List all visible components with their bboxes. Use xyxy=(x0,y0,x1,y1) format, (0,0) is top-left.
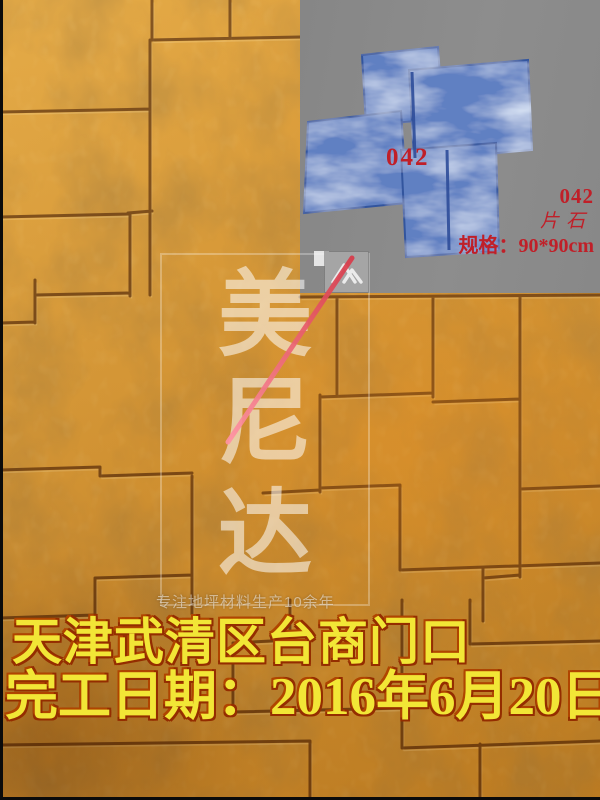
mold-code-label: 042 xyxy=(386,144,430,172)
location-caption: 天津武清区台商门口 xyxy=(12,617,471,667)
product-code-label: 042 xyxy=(458,186,594,207)
mountain-logo-icon xyxy=(325,252,368,292)
photo-canvas: 042 042 片石 规格：90*90cm 美 尼 达 专注地坪材料生产10 xyxy=(0,0,600,800)
brand-tagline: 专注地坪材料生产10余年 xyxy=(156,591,335,612)
photo-left-edge xyxy=(0,0,3,800)
product-label-block: 042 片石 规格：90*90cm xyxy=(458,186,594,256)
completion-date-caption: 完工日期：2016年6月20日 xyxy=(5,671,600,724)
product-material-label: 片石 xyxy=(458,212,594,231)
brand-logo xyxy=(325,252,368,292)
mold-product-inset: 042 042 片石 规格：90*90cm xyxy=(300,0,600,293)
product-spec-label: 规格：90*90cm xyxy=(458,236,594,256)
